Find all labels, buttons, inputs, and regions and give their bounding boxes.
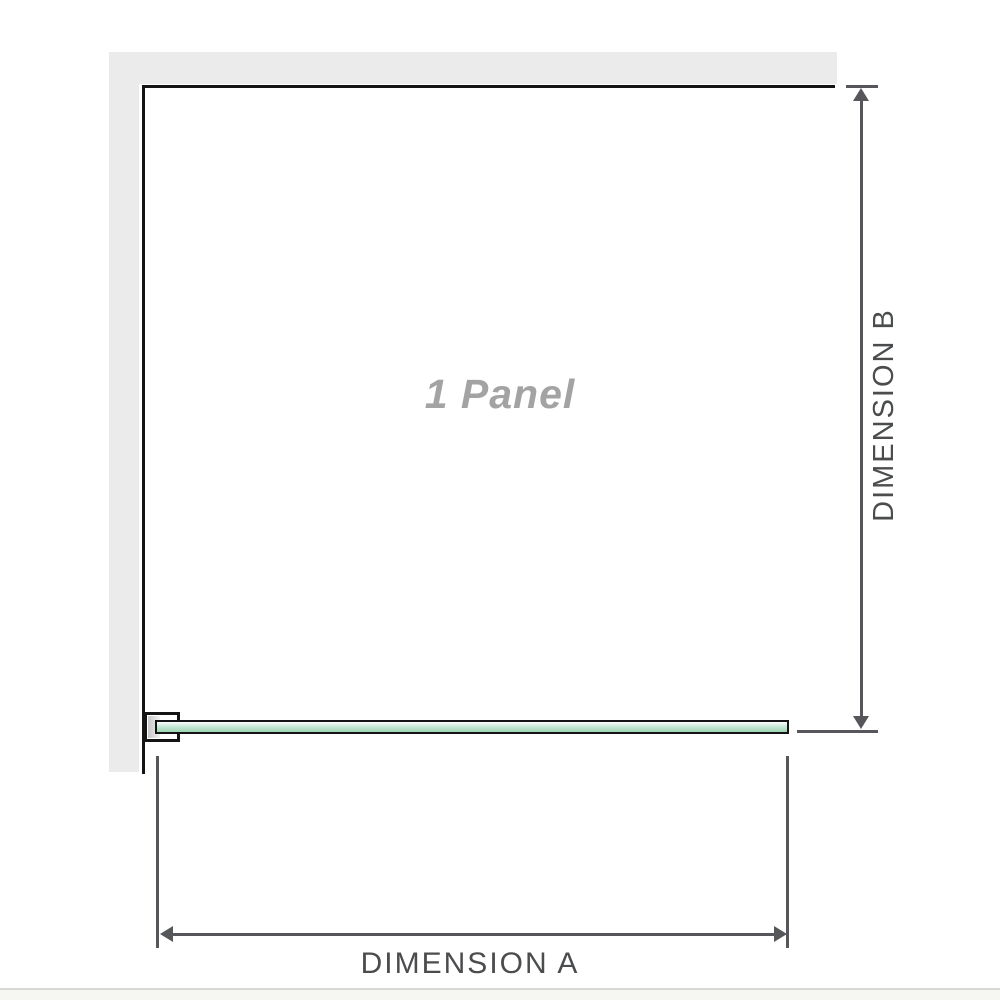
dimension-a-extension-right — [786, 756, 789, 948]
arrow-up-icon — [853, 88, 869, 101]
arrow-left-icon — [160, 926, 173, 942]
wall-top-bar — [109, 52, 837, 84]
panel-label: 1 Panel — [398, 368, 602, 420]
arrow-right-icon — [774, 926, 787, 942]
panel-dimension-diagram: 1 Panel DIMENSION B DIMENSION A — [0, 0, 1000, 1000]
arrow-down-icon — [853, 716, 869, 729]
glass-panel-bar — [155, 720, 789, 734]
dimension-b-label: DIMENSION B — [868, 265, 900, 565]
wall-left-bar — [109, 52, 139, 772]
dimension-b-line — [860, 96, 863, 720]
footer-strip — [0, 990, 1000, 1000]
dimension-a-label: DIMENSION A — [320, 946, 620, 982]
dimension-a-line — [163, 933, 784, 936]
dimension-a-extension-left — [156, 756, 159, 948]
panel-outline-left — [142, 85, 145, 774]
dimension-b-tick-bottom — [797, 730, 878, 733]
panel-outline-top — [143, 85, 835, 88]
